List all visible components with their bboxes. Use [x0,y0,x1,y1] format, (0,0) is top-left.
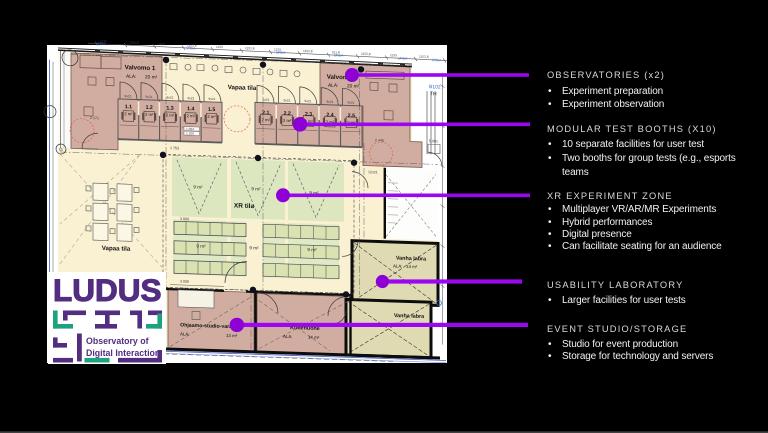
svg-text:2.4: 2.4 [326,112,333,118]
svg-text:20 m²: 20 m² [145,74,158,80]
svg-text:9 m²: 9 m² [193,184,203,189]
svg-text:2 m²: 2 m² [207,114,216,119]
svg-text:URSA: URSA [276,51,286,55]
svg-text:9x21: 9x21 [327,100,334,104]
svg-text:14 m²: 14 m² [308,335,320,340]
svg-text:2 m²: 2 m² [187,113,196,118]
svg-text:1152,8: 1152,8 [245,46,255,50]
svg-text:URSA: URSA [334,53,344,57]
svg-text:B102: B102 [429,84,441,90]
svg-text:20 m²: 20 m² [347,83,360,89]
svg-text:1152,8: 1152,8 [361,52,371,56]
svg-text:1.5: 1.5 [208,107,215,113]
svg-text:URSA: URSA [398,56,408,60]
svg-text:9x21: 9x21 [146,95,153,99]
svg-text:URSA: URSA [96,42,106,46]
svg-text:2 171: 2 171 [90,116,99,120]
svg-text:2 m²: 2 m² [262,117,271,122]
svg-text:1.3: 1.3 [166,105,173,111]
svg-text:ALA:: ALA: [283,334,293,339]
svg-text:9x21: 9x21 [167,95,174,99]
svg-text:2.1: 2.1 [262,110,269,116]
svg-text:1133: 1133 [390,53,397,57]
svg-text:9 m²: 9 m² [249,245,259,250]
svg-text:3 000: 3 000 [180,217,189,221]
svg-text:9x21: 9x21 [125,94,132,98]
svg-text:ALA:: ALA: [126,74,136,80]
svg-text:URSA: URSA [186,46,196,50]
svg-text:Digital Interaction: Digital Interaction [86,348,160,358]
svg-text:9x21: 9x21 [188,96,195,100]
svg-text:ALA:: ALA: [180,331,190,336]
svg-text:2.3: 2.3 [305,112,312,118]
svg-text:5,001: 5,001 [429,139,438,143]
svg-text:Observatory of: Observatory of [86,336,149,346]
svg-text:9x21: 9x21 [348,100,355,104]
svg-text:9 m²: 9 m² [196,243,206,248]
svg-text:9x21: 9x21 [284,98,291,102]
svg-text:2 m²: 2 m² [166,112,175,117]
svg-text:1152,8: 1152,8 [129,41,139,45]
svg-text:1133: 1133 [216,45,223,49]
svg-text:ALA:: ALA: [393,263,403,268]
svg-text:14 m²: 14 m² [406,264,418,269]
svg-text:13 m²: 13 m² [226,333,238,338]
svg-text:1.1: 1.1 [125,104,132,110]
svg-text:2 445: 2 445 [375,138,384,142]
svg-text:9 m²: 9 m² [307,247,317,252]
svg-text:1.4: 1.4 [187,106,194,112]
svg-text:2 m²: 2 m² [124,111,133,116]
svg-text:Vapaa tila: Vapaa tila [228,84,257,92]
svg-text:12x21: 12x21 [368,170,378,174]
svg-text:1133: 1133 [158,42,165,46]
svg-text:2.2: 2.2 [284,111,291,117]
svg-text:URSA: URSA [432,58,442,62]
svg-text:Vapaa tila: Vapaa tila [102,245,131,253]
svg-text:Vanha labra: Vanha labra [396,256,427,263]
svg-text:9x21: 9x21 [209,97,216,101]
svg-text:9 m²: 9 m² [251,186,261,191]
svg-text:G: G [59,147,63,152]
svg-text:9x21: 9x21 [263,98,270,102]
svg-text:2 m²: 2 m² [145,112,154,117]
svg-text:Valvomo 1: Valvomo 1 [125,64,156,72]
svg-text:Vanha labra: Vanha labra [394,313,425,320]
svg-text:LUDUS: LUDUS [53,272,161,308]
svg-text:XR tila: XR tila [234,203,255,211]
svg-text:1152,8: 1152,8 [419,55,429,59]
svg-text:2.5: 2.5 [348,113,355,119]
svg-text:ALA:: ALA: [328,83,338,89]
svg-text:1 150: 1 150 [186,131,194,135]
svg-text:1.2: 1.2 [146,105,153,111]
svg-text:9x21: 9x21 [305,99,312,103]
svg-text:2 m²: 2 m² [283,118,292,123]
svg-text:1 753: 1 753 [170,146,179,150]
svg-text:3 000: 3 000 [180,279,189,283]
svg-text:1152,8: 1152,8 [303,49,313,53]
